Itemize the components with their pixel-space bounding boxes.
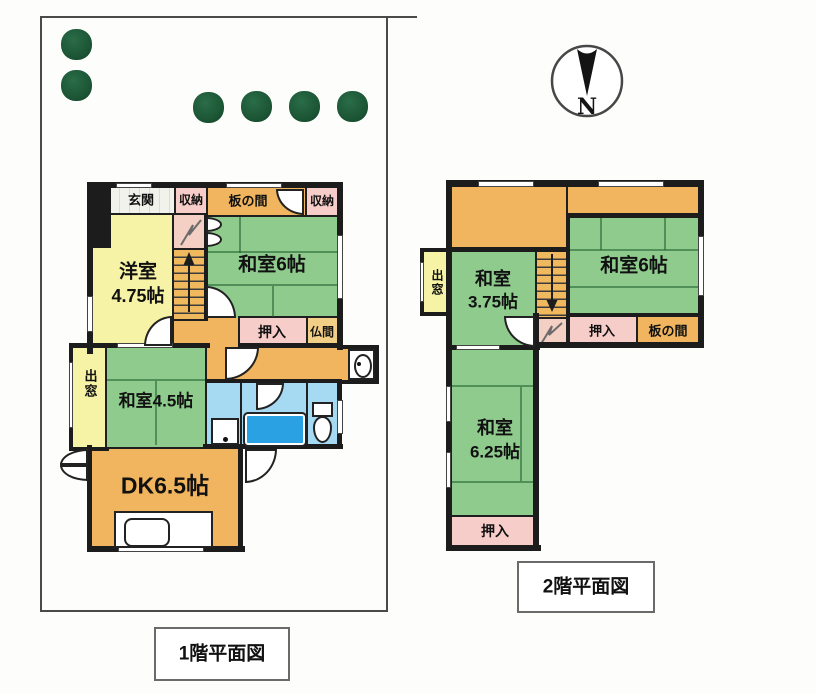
tatami-line bbox=[239, 217, 241, 253]
tree-icon bbox=[61, 70, 92, 101]
room-label-oshiire: 押入 bbox=[258, 325, 286, 339]
window bbox=[420, 262, 424, 302]
wall bbox=[566, 313, 704, 317]
drain-dot bbox=[223, 437, 228, 442]
tatami-line bbox=[570, 249, 698, 251]
floorplan-scan: N bbox=[0, 0, 816, 694]
kitchen-sink-icon bbox=[124, 518, 170, 547]
stairs-down-arrow-icon bbox=[543, 254, 561, 314]
lot-boundary-right bbox=[386, 16, 388, 612]
room-label-dk: DK6.5帖 bbox=[121, 475, 209, 498]
lot-boundary-left bbox=[40, 16, 42, 612]
window bbox=[226, 183, 282, 188]
basin-bowl-icon bbox=[354, 354, 372, 378]
wall bbox=[375, 345, 379, 384]
room-label-oshiire: 押入 bbox=[481, 524, 509, 538]
tatami-line bbox=[520, 387, 522, 481]
room-label-washitsu6: 和室6帖 bbox=[600, 257, 668, 276]
wall bbox=[238, 445, 243, 552]
room-label-oshiire: 押入 bbox=[589, 325, 615, 338]
room-label-demado: 出窓 bbox=[431, 269, 443, 297]
room-label-washitsu625: 和室 bbox=[477, 419, 513, 437]
wall bbox=[446, 247, 570, 252]
floor1-title: 1階平面図 bbox=[179, 645, 266, 664]
room-label-washitsu375-size: 3.75帖 bbox=[468, 294, 518, 311]
room-label-closet: 収納 bbox=[179, 194, 203, 206]
tatami-line bbox=[272, 286, 274, 317]
tree-icon bbox=[193, 92, 224, 123]
floor2-title: 2階平面図 bbox=[543, 578, 630, 597]
room-label-washitsu375: 和室 bbox=[475, 270, 511, 288]
tatami-line bbox=[664, 217, 666, 250]
entrance-porch-block bbox=[89, 186, 111, 248]
room-label-butsuma: 仏間 bbox=[310, 326, 334, 338]
tatami-line bbox=[570, 286, 698, 288]
window bbox=[698, 236, 704, 296]
room-label-itanoma: 板の間 bbox=[228, 195, 267, 208]
bathtub-icon bbox=[245, 414, 305, 445]
door-swing-arc bbox=[245, 449, 277, 483]
lot-boundary-bottom bbox=[40, 610, 388, 612]
stairs-up-arrow-icon bbox=[180, 252, 198, 316]
stair-break-zigzag-icon bbox=[178, 218, 204, 248]
tree-icon bbox=[241, 91, 272, 122]
room-label-demado: 出窓 bbox=[84, 369, 97, 399]
tree-icon bbox=[289, 91, 320, 122]
tatami-line bbox=[452, 385, 536, 387]
door-swing-arc bbox=[60, 465, 88, 481]
window bbox=[478, 181, 534, 187]
window bbox=[446, 452, 451, 488]
window bbox=[446, 386, 451, 422]
wall bbox=[566, 213, 704, 218]
window bbox=[87, 296, 93, 332]
window bbox=[116, 183, 152, 188]
window bbox=[337, 400, 343, 434]
room-label-itanoma: 板の間 bbox=[648, 325, 687, 338]
toilet-icon bbox=[312, 402, 333, 417]
room-label-washitsu45: 和室4.5帖 bbox=[119, 393, 194, 410]
wall bbox=[446, 182, 451, 254]
tatami-line bbox=[600, 217, 602, 250]
wall bbox=[533, 313, 539, 551]
window bbox=[456, 345, 500, 350]
door-swing-arc bbox=[60, 449, 88, 465]
north-compass-icon: N bbox=[548, 42, 626, 122]
hall-basin-fixture bbox=[348, 349, 375, 380]
kitchen-counter bbox=[114, 511, 213, 548]
tatami-line bbox=[206, 251, 338, 253]
wall bbox=[341, 380, 379, 384]
window bbox=[69, 362, 73, 428]
tree-icon bbox=[61, 29, 92, 60]
window bbox=[337, 235, 343, 299]
lot-boundary-top bbox=[40, 16, 417, 18]
tatami-line bbox=[452, 481, 536, 483]
room-label-genkan: 玄関 bbox=[128, 194, 154, 207]
wall bbox=[533, 342, 704, 348]
tree-icon bbox=[337, 91, 368, 122]
svg-text:N: N bbox=[577, 94, 597, 120]
room-label-yoshitsu: 洋室 bbox=[119, 263, 157, 282]
room-label-closet: 収納 bbox=[310, 195, 334, 207]
basin-drain-dot bbox=[357, 362, 361, 366]
wall bbox=[566, 213, 570, 321]
window bbox=[598, 181, 664, 187]
wall bbox=[446, 545, 541, 551]
room-label-washitsu6: 和室6帖 bbox=[238, 256, 306, 275]
balcony-hall-2f bbox=[450, 184, 568, 252]
laundry-pan-icon bbox=[211, 418, 239, 445]
room-label-yoshitsu-size: 4.75帖 bbox=[111, 287, 164, 305]
room-label-washitsu625-size: 6.25帖 bbox=[470, 444, 520, 461]
